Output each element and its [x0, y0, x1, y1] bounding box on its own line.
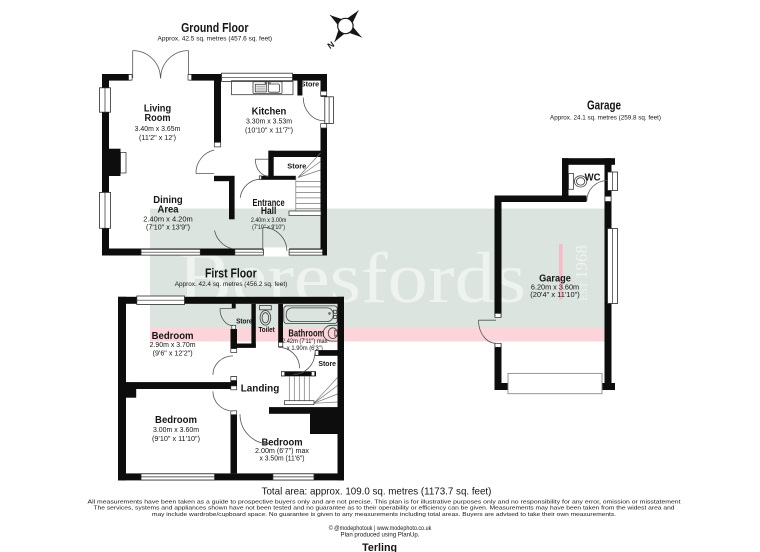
svg-text:Store: Store	[318, 359, 336, 368]
svg-text:(9'6" x 12'2"): (9'6" x 12'2")	[153, 348, 193, 357]
svg-text:(7'10" x 9'10"): (7'10" x 9'10")	[252, 224, 285, 231]
svg-text:Total area: approx. 109.0 sq.: Total area: approx. 109.0 sq. metres (11…	[262, 487, 492, 498]
svg-text:Approx. 42.5 sq. metres (457.6: Approx. 42.5 sq. metres (457.6 sq. feet)	[158, 36, 273, 43]
svg-text:All measurements have been tak: All measurements have been taken as a gu…	[88, 500, 682, 506]
svg-text:Terling: Terling	[362, 542, 397, 552]
svg-text:2.42m (7'11") max: 2.42m (7'11") max	[282, 339, 328, 345]
svg-text:Garage: Garage	[587, 98, 621, 112]
svg-text:(9'10" x 11'10"): (9'10" x 11'10")	[152, 434, 200, 443]
svg-text:Plan produced using PlanUp.: Plan produced using PlanUp.	[341, 531, 420, 538]
svg-text:(20'4" x 11'10"): (20'4" x 11'10")	[530, 290, 580, 299]
svg-text:x 3.50m (11'6"): x 3.50m (11'6")	[260, 454, 305, 463]
svg-text:Landing: Landing	[241, 384, 280, 395]
svg-text:3.00m x 3.60m: 3.00m x 3.60m	[153, 425, 199, 434]
svg-text:(11'2" x 12'): (11'2" x 12')	[139, 133, 176, 142]
svg-text:may include wardrobe/cupboard: may include wardrobe/cupboard space. No …	[152, 512, 617, 518]
svg-text:(10'10" x 11'7"): (10'10" x 11'7")	[245, 125, 293, 134]
svg-text:Approx. 42.4 sq. metres (456.2: Approx. 42.4 sq. metres (456.2 sq. feet)	[175, 281, 288, 288]
svg-text:(7'10" x 13'9"): (7'10" x 13'9")	[146, 223, 190, 232]
svg-text:Approx. 24.1 sq. metres (259.8: Approx. 24.1 sq. metres (259.8 sq. feet)	[550, 115, 661, 122]
svg-text:Store: Store	[301, 80, 319, 89]
svg-text:3.40m x 3.65m: 3.40m x 3.65m	[135, 124, 181, 133]
svg-text:Bathroom: Bathroom	[288, 328, 324, 339]
svg-text:N: N	[325, 39, 336, 51]
svg-text:Store: Store	[287, 161, 306, 170]
svg-text:2.40m x 3.00m: 2.40m x 3.00m	[251, 217, 287, 224]
svg-text:First Floor: First Floor	[205, 267, 257, 281]
svg-text:Room: Room	[145, 113, 171, 124]
svg-text:Toilet: Toilet	[258, 325, 275, 334]
svg-text:Hall: Hall	[261, 206, 277, 217]
svg-text:Ground Floor: Ground Floor	[181, 21, 249, 35]
svg-text:3.30m x 3.53m: 3.30m x 3.53m	[246, 116, 292, 125]
svg-text:The services, systems and appl: The services, systems and appliances sho…	[94, 506, 675, 512]
svg-text:Store: Store	[236, 317, 252, 326]
